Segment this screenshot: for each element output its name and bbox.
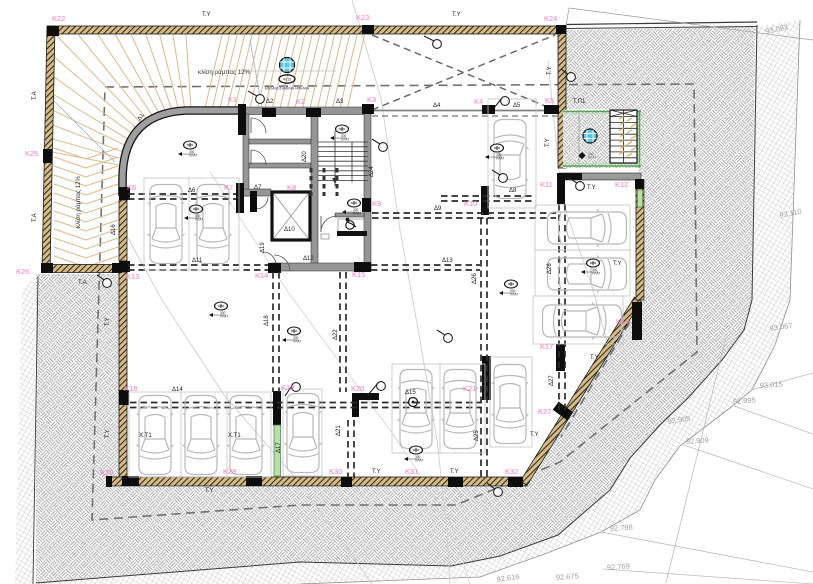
svg-text:K11: K11 bbox=[540, 180, 553, 189]
svg-text:92.769: 92.769 bbox=[607, 561, 631, 572]
svg-text:K5: K5 bbox=[545, 96, 554, 105]
svg-text:K27: K27 bbox=[538, 407, 551, 416]
svg-text:92.995: 92.995 bbox=[733, 395, 757, 406]
svg-text:T.Y: T.Y bbox=[105, 317, 111, 326]
svg-text:Δ17: Δ17 bbox=[276, 442, 282, 453]
svg-text:K12: K12 bbox=[615, 180, 628, 189]
svg-text:T.Y: T.Y bbox=[547, 66, 553, 75]
svg-text:T.Y: T.Y bbox=[450, 469, 459, 475]
svg-text:X.T1: X.T1 bbox=[228, 433, 241, 439]
svg-text:Δ19: Δ19 bbox=[260, 242, 266, 253]
svg-text:K16: K16 bbox=[616, 317, 629, 326]
svg-text:Δ8: Δ8 bbox=[509, 188, 517, 194]
svg-text:K9: K9 bbox=[372, 199, 381, 208]
svg-text:T.A: T.A bbox=[32, 91, 38, 100]
svg-text:ΠΛΑΤ: ΠΛΑΤ bbox=[415, 459, 423, 463]
svg-text:Δ15: Δ15 bbox=[405, 390, 416, 396]
svg-text:T.A: T.A bbox=[32, 213, 38, 222]
svg-text:K29: K29 bbox=[223, 467, 236, 476]
svg-text:K19: K19 bbox=[281, 383, 294, 392]
svg-text:Δ25: Δ25 bbox=[474, 430, 480, 441]
svg-text:T.Π1: T.Π1 bbox=[573, 99, 586, 105]
svg-text:Δ12: Δ12 bbox=[303, 256, 314, 262]
svg-text:T.Y: T.Y bbox=[105, 429, 111, 438]
svg-text:K18: K18 bbox=[124, 384, 137, 393]
svg-text:ΠΛΑΤ: ΠΛΑΤ bbox=[195, 218, 203, 222]
svg-text:T.Y: T.Y bbox=[372, 469, 381, 475]
svg-text:K4: K4 bbox=[474, 97, 483, 106]
svg-text:K3: K3 bbox=[367, 95, 376, 104]
svg-text:Δ20: Δ20 bbox=[302, 151, 308, 162]
svg-text:92.909: 92.909 bbox=[686, 435, 710, 446]
svg-text:Δ4: Δ4 bbox=[433, 103, 441, 109]
svg-text:T.Y: T.Y bbox=[545, 138, 551, 147]
svg-text:K6: K6 bbox=[127, 183, 136, 192]
svg-text:ΜΕΧΑΝΟΣΗΜΕΝΗ ΗΡΑ ΑΚΑ: ΜΕΧΑΝΟΣΗΜΕΝΗ ΗΡΑ ΑΚΑ bbox=[265, 87, 310, 91]
svg-text:Δ28: Δ28 bbox=[547, 263, 553, 274]
svg-text:K22: K22 bbox=[52, 14, 65, 23]
svg-text:K21: K21 bbox=[463, 384, 476, 393]
svg-text:K14: K14 bbox=[255, 271, 268, 280]
svg-text:K28: K28 bbox=[100, 468, 113, 477]
svg-text:Δ5: Δ5 bbox=[513, 103, 521, 109]
svg-text:Δ9: Δ9 bbox=[434, 206, 442, 212]
svg-text:K8: K8 bbox=[287, 183, 296, 192]
svg-text:Δ27: Δ27 bbox=[549, 375, 555, 386]
svg-text:ΠΛΑΤ: ΠΛΑΤ bbox=[341, 138, 349, 142]
svg-text:Δ18: Δ18 bbox=[264, 315, 270, 326]
svg-text:κλίση ράμπας 12%: κλίση ράμπας 12% bbox=[198, 69, 251, 76]
svg-text:T.Y: T.Y bbox=[202, 12, 211, 18]
svg-text:K15: K15 bbox=[352, 270, 365, 279]
svg-text:Δ2: Δ2 bbox=[266, 99, 274, 105]
svg-text:K7: K7 bbox=[224, 183, 233, 192]
svg-text:X.T1: X.T1 bbox=[139, 433, 152, 439]
svg-text:K30: K30 bbox=[329, 467, 342, 476]
svg-text:T.Y: T.Y bbox=[590, 355, 599, 361]
svg-text:Δ3: Δ3 bbox=[336, 99, 344, 105]
svg-text:92.675: 92.675 bbox=[556, 571, 580, 582]
svg-text:ΠΛΑΤ: ΠΛΑΤ bbox=[353, 212, 361, 216]
svg-text:Δ7: Δ7 bbox=[254, 185, 262, 191]
svg-text:ΠΛΑΤ: ΠΛΑΤ bbox=[220, 315, 228, 319]
svg-text:K26: K26 bbox=[16, 267, 29, 276]
svg-text:Δ24: Δ24 bbox=[369, 166, 375, 177]
svg-text:K1: K1 bbox=[228, 95, 237, 104]
svg-text:T.A: T.A bbox=[78, 280, 87, 286]
svg-text:K10: K10 bbox=[464, 199, 477, 208]
svg-text:ΠΛΑΤ: ΠΛΑΤ bbox=[496, 157, 504, 161]
svg-text:ΠΛΑΤ: ΠΛΑΤ bbox=[588, 156, 596, 160]
svg-text:K17: K17 bbox=[540, 342, 553, 351]
svg-text:K2: K2 bbox=[296, 97, 305, 106]
svg-text:93.015: 93.015 bbox=[760, 379, 784, 390]
svg-text:92.798: 92.798 bbox=[610, 522, 634, 533]
svg-text:K31: K31 bbox=[405, 467, 418, 476]
svg-text:T.Y: T.Y bbox=[452, 12, 461, 18]
svg-text:ΠΛΑΤ: ΠΛΑΤ bbox=[592, 272, 600, 276]
svg-text:T.Y: T.Y bbox=[205, 488, 214, 494]
svg-text:Δ14: Δ14 bbox=[172, 387, 183, 393]
svg-text:K23: K23 bbox=[356, 13, 369, 22]
svg-text:Δ6: Δ6 bbox=[188, 188, 196, 194]
svg-text:T.Y: T.Y bbox=[587, 185, 596, 191]
svg-text:K32: K32 bbox=[505, 467, 518, 476]
svg-text:ΠΛΑΤ: ΠΛΑΤ bbox=[293, 340, 301, 344]
svg-text:Φ115: Φ115 bbox=[283, 78, 292, 82]
svg-text:T.Y: T.Y bbox=[530, 432, 539, 438]
svg-text:K24: K24 bbox=[544, 14, 557, 23]
svg-text:κλίση ράμπας 12%: κλίση ράμπας 12% bbox=[75, 175, 82, 228]
svg-text:Δ26: Δ26 bbox=[472, 273, 478, 284]
svg-text:ΠΛΑΤ: ΠΛΑΤ bbox=[189, 154, 197, 158]
svg-text:Δ16: Δ16 bbox=[111, 224, 117, 235]
svg-text:Δ21: Δ21 bbox=[336, 425, 342, 436]
svg-text:Δ11: Δ11 bbox=[192, 258, 203, 264]
svg-text:T.Y: T.Y bbox=[613, 261, 622, 267]
svg-text:K20: K20 bbox=[351, 384, 364, 393]
svg-text:Δ22: Δ22 bbox=[333, 329, 339, 340]
svg-text:ΠΛΑΤ: ΠΛΑΤ bbox=[510, 293, 518, 297]
svg-text:K13: K13 bbox=[126, 272, 139, 281]
svg-text:K25: K25 bbox=[25, 149, 38, 158]
svg-text:Δ10: Δ10 bbox=[284, 227, 295, 233]
svg-text:Δ13: Δ13 bbox=[442, 258, 453, 264]
